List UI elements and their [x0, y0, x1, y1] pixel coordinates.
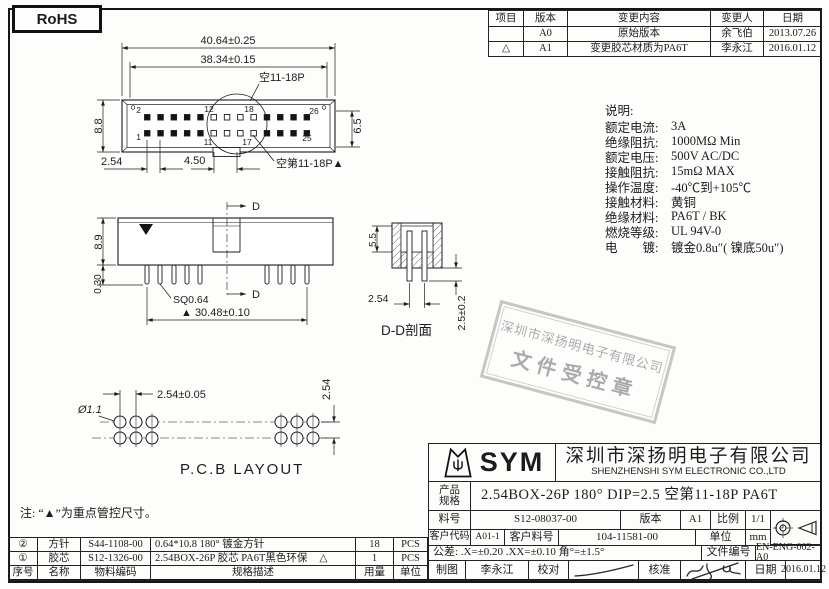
version-value: A1 — [680, 510, 711, 530]
section-title: D-D剖面 — [381, 323, 432, 338]
product-spec-value: 2.54BOX-26P 180° DIP=2.5 空第11-18P PA6T — [470, 481, 822, 511]
dim-side-height: 8.9 — [93, 234, 105, 249]
company-name-cn: 深圳市深扬明电子有限公司 — [565, 448, 811, 467]
bom-desc: 2.54BOX-26P 胶芯 PA6T黑色环保 △ — [150, 551, 356, 566]
callout-empty-pins-top: 空11-18P — [259, 70, 305, 84]
company-name-en: SHENZHENSHI SYM ELECTRONIC CO.,LTD — [591, 467, 786, 477]
pin-number: 12 — [204, 104, 214, 114]
bom-table: ② 方针 S44-1108-00 0.64*10.8 180° 镀金方针 18 … — [8, 537, 428, 581]
bom-qty: 1 — [355, 551, 394, 566]
check-label: 校对 — [528, 560, 569, 581]
projection-symbol-cell — [770, 510, 822, 545]
dim-hole-diameter: Ø1.1 — [77, 404, 102, 416]
pin-number: 25 — [302, 133, 312, 143]
product-label-line1: 产品 — [439, 485, 460, 496]
bom-desc: 0.64*10.8 180° 镀金方针 — [150, 537, 356, 552]
bom-header-qty: 用量 — [355, 565, 394, 581]
part-no-label: 料号 — [428, 510, 471, 530]
projection-angle-icon — [772, 517, 820, 539]
version-label: 版本 — [620, 510, 681, 530]
title-block: SYM 深圳市深扬明电子有限公司 SHENZHENSHI SYM ELECTRO… — [428, 443, 822, 581]
sym-emblem-icon — [440, 446, 476, 480]
customer-part-label: 客户料号 — [504, 529, 559, 546]
company-cell: 深圳市深扬明电子有限公司 SHENZHENSHI SYM ELECTRONIC … — [555, 443, 822, 482]
pcb-layout-title: P.C.B LAYOUT — [180, 461, 304, 478]
dim-inner-width: 38.34±0.15 — [201, 54, 256, 66]
pin-number: 26 — [309, 106, 319, 116]
dim-overall-width: 40.64±0.25 — [201, 35, 256, 47]
approve-label: 核准 — [638, 560, 681, 581]
drawn-label: 制图 — [428, 560, 466, 581]
drawn-value: 李永江 — [465, 560, 529, 581]
revision-triangle-mark: △ — [319, 553, 327, 564]
pin-number: 2 — [136, 105, 141, 115]
dim-body-height: 8.8 — [93, 118, 105, 133]
pin-number: 17 — [242, 137, 252, 147]
bom-unit: PCS — [393, 551, 428, 566]
section-mark-d: D — [252, 289, 260, 301]
bom-header-name: 名称 — [37, 565, 81, 581]
bom-code: S12-1326-00 — [80, 551, 151, 566]
dim-gap: 4.50 — [184, 155, 205, 167]
dim-hole-pitch: 2.54±0.05 — [157, 389, 206, 401]
bom-header-desc: 规格描述 — [150, 565, 356, 581]
customer-code-label: 客户代码 — [428, 529, 471, 546]
pin-number: 18 — [244, 104, 254, 114]
bom-desc-text: 2.54BOX-26P 胶芯 PA6T黑色环保 — [155, 553, 307, 564]
approve-signature — [680, 560, 746, 581]
approve-signature-stroke — [682, 561, 744, 581]
customer-part-value: 104-11581-00 — [558, 529, 696, 546]
bom-header-no: 序号 — [8, 565, 38, 581]
bom-no: ② — [8, 537, 38, 552]
check-signature — [568, 560, 639, 581]
bom-header-unit: 单位 — [393, 565, 428, 581]
scale-label: 比例 — [710, 510, 746, 530]
date-value: 2016.01.12 — [785, 560, 822, 581]
dim-pin-span: ▲ 30.48±0.10 — [181, 307, 250, 319]
section-mark-d: D — [252, 201, 260, 213]
pin-number: 1 — [136, 132, 141, 142]
bom-qty: 18 — [355, 537, 394, 552]
bom-name: 方针 — [37, 537, 81, 552]
unit-label: 单位 — [695, 529, 746, 546]
bom-header-code: 物料编码 — [80, 565, 151, 581]
top-view: 40.64±0.25 38.34±0.15 8.8 6.5 2.54 4.50 … — [93, 35, 364, 173]
pin-square-label: SQ0.64 — [173, 294, 209, 306]
pin-number: 11 — [204, 137, 213, 147]
callout-empty-pins-bottom: 空第11-18P▲ — [276, 156, 344, 170]
product-label-cell: 产品 规格 — [428, 481, 471, 511]
bom-name: 胶芯 — [37, 551, 81, 566]
logo-text: SYM — [480, 448, 545, 476]
dim-row-pitch: 2.54 — [321, 379, 333, 400]
drawing-sheet: RoHS 项目 版本 变更内容 变更人 日期 A0 原始版本 余飞伯 2013.… — [0, 0, 829, 589]
customer-code-value: A01-1 — [470, 529, 505, 546]
dim-standoff: 0.30 — [93, 274, 104, 294]
date-label: 日期 — [745, 560, 786, 581]
logo-cell: SYM — [428, 443, 556, 482]
dim-section-pitch: 2.54 — [368, 293, 389, 305]
tolerance-note: 公差: .X=±0.20 .XX=±0.10 角°=±1.5° — [428, 545, 702, 561]
pcb-layout: 2.54±0.05 Ø1.1 2.54 P.C.B LAYOUT — [77, 379, 340, 478]
scale-value: 1/1 — [745, 510, 771, 530]
section-view: 5.5 2.54 2.5±0.2 D-D剖面 — [368, 223, 468, 338]
bom-code: S44-1108-00 — [80, 537, 151, 552]
check-signature-stroke — [571, 562, 637, 580]
dim-slot-height: 6.5 — [352, 118, 364, 133]
dim-pin-tail: 2.5±0.2 — [456, 295, 468, 330]
part-no-value: S12-08037-00 — [470, 510, 621, 530]
bom-no: ① — [8, 551, 38, 566]
doc-no-label: 文件编号 — [701, 545, 756, 561]
dim-pin-pitch: 2.54 — [101, 156, 122, 168]
bom-unit: PCS — [393, 537, 428, 552]
side-view: D D 8.9 0.30 SQ0.64 ▲ 30.48±0.10 — [93, 201, 333, 325]
dim-cavity-depth: 5.5 — [368, 233, 379, 247]
doc-no-value: EN-ENG-002-A0 — [755, 545, 822, 561]
product-label-line2: 规格 — [439, 496, 460, 507]
